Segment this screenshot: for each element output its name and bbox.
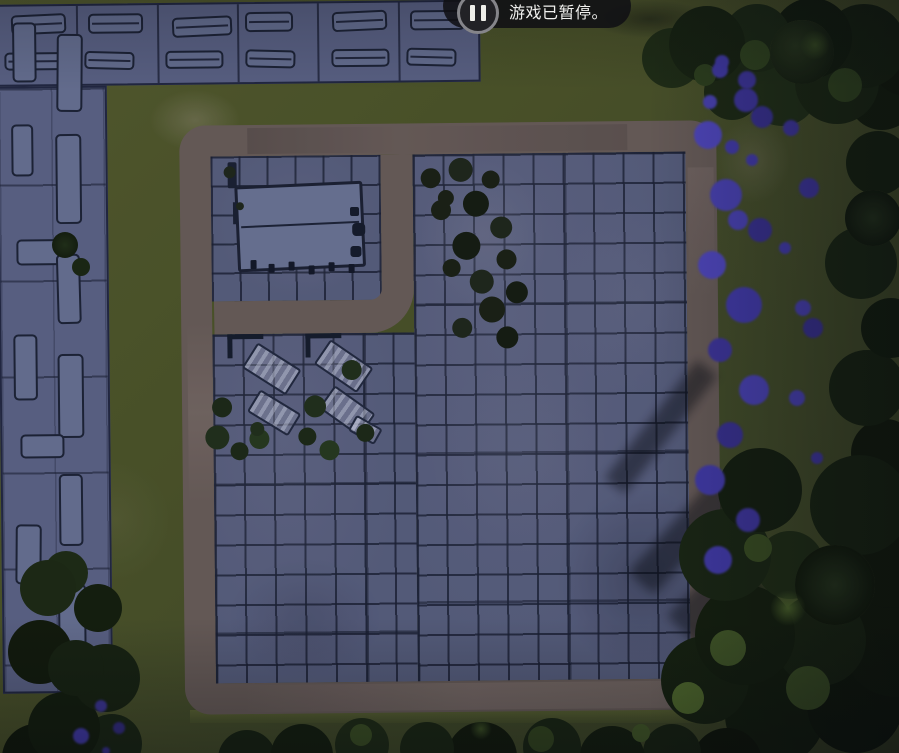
building-roof bbox=[85, 51, 135, 70]
building-roof bbox=[59, 474, 84, 546]
building-roof bbox=[88, 13, 143, 34]
pause-bar bbox=[481, 5, 486, 21]
building-roof bbox=[15, 524, 41, 584]
building-roof bbox=[332, 49, 390, 68]
building-roof bbox=[406, 48, 456, 67]
building-roof bbox=[332, 10, 388, 32]
building-roof bbox=[56, 34, 83, 112]
game-viewport[interactable]: 游戏已暂停。 bbox=[0, 0, 899, 753]
building-roof bbox=[245, 49, 295, 68]
building-plot[interactable] bbox=[76, 5, 157, 84]
pause-toast: 游戏已暂停。 bbox=[443, 0, 631, 28]
building-roof bbox=[56, 254, 82, 325]
building-roof bbox=[55, 134, 82, 224]
barn-porch-posts bbox=[251, 260, 257, 269]
building-roof bbox=[245, 12, 293, 33]
building-roof bbox=[13, 334, 38, 400]
settlement-area[interactable] bbox=[0, 0, 899, 753]
building-row-left[interactable] bbox=[0, 86, 113, 694]
building-roof bbox=[165, 50, 223, 69]
building-roof bbox=[19, 644, 59, 666]
barn-building[interactable] bbox=[234, 181, 366, 273]
building-roof bbox=[58, 584, 87, 648]
building-roof bbox=[11, 124, 34, 176]
building-roof bbox=[12, 22, 37, 82]
pause-bar bbox=[470, 5, 475, 21]
building-roof bbox=[57, 354, 84, 438]
barn-annex bbox=[350, 207, 359, 216]
pause-toast-label: 游戏已暂停。 bbox=[509, 5, 608, 21]
building-roof bbox=[171, 15, 232, 38]
building-plot[interactable] bbox=[317, 3, 398, 82]
building-plot[interactable] bbox=[157, 4, 238, 83]
yard-object bbox=[227, 162, 236, 188]
building-plot[interactable] bbox=[237, 3, 318, 82]
building-roof bbox=[20, 434, 64, 458]
